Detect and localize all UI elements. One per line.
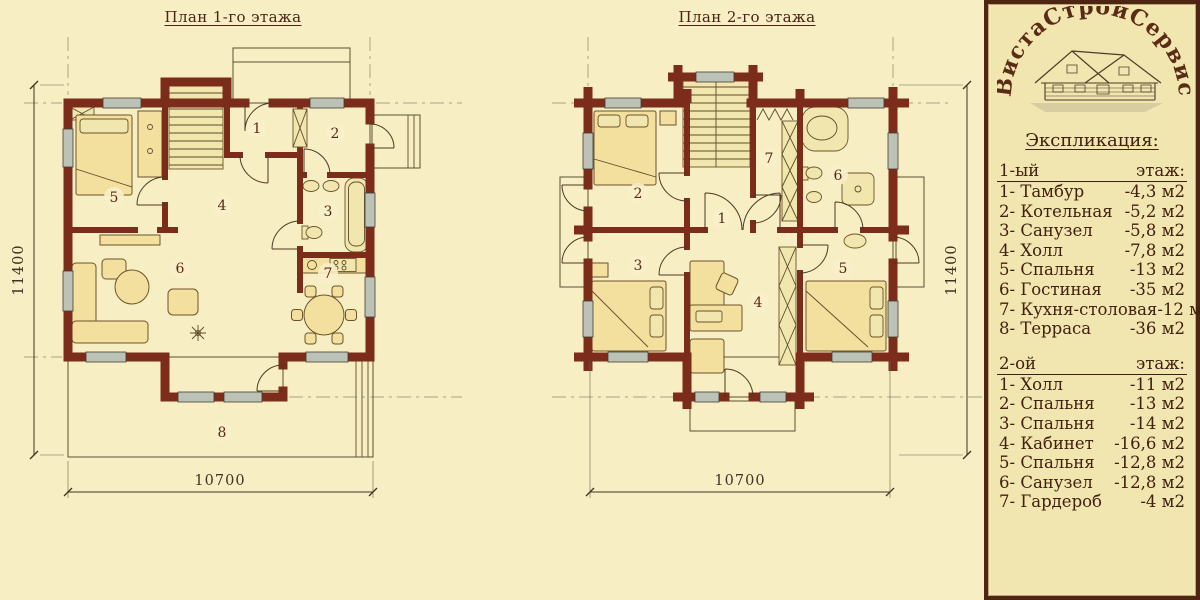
room-name: 7- Кухня-столовая: [999, 300, 1157, 320]
plan2-title: План 2-го этажа: [632, 8, 862, 26]
legend-row: 5- Спальня-12,8 м2: [997, 453, 1187, 473]
floor-plan-1-drawing: 1 2 3 4 5 6 7 8 10700 11400: [10, 25, 470, 510]
room-area: -14 м2: [1130, 414, 1185, 434]
room-area: -36 м2: [1130, 319, 1185, 339]
logo-arc-text: ВистаСтройСервис: [997, 6, 1193, 98]
plan1-vent-shaft: [293, 109, 307, 147]
room-name: 2- Котельная: [999, 202, 1113, 222]
plan2-dim-side: 11400: [944, 244, 960, 295]
plan2-room-label-7: 7: [765, 151, 774, 167]
plan1-entry-porch: [233, 48, 350, 103]
room-area: -7,8 м2: [1125, 241, 1185, 261]
plan1-dim-bottom: 10700: [194, 473, 245, 489]
legend-row: 5- Спальня-13 м2: [997, 260, 1187, 280]
plant-icon: [190, 325, 206, 341]
room-name: 5- Спальня: [999, 453, 1095, 473]
room-area: -35 м2: [1130, 280, 1185, 300]
svg-text:ВистаСтройСервис: ВистаСтройСервис: [997, 6, 1193, 98]
floor-plan-2-drawing: 1 2 3 4 5 6 7 10700 11400: [550, 25, 990, 510]
legend-row: 2- Котельная-5,2 м2: [997, 202, 1187, 222]
room-area: -5,2 м2: [1125, 202, 1185, 222]
room-area: -12 м2: [1157, 300, 1200, 320]
plan2-dim-bottom: 10700: [714, 473, 765, 489]
room-area: -13 м2: [1130, 260, 1185, 280]
legend-floor1-section: 1-ый этаж: 1- Тамбур-4,3 м2 2- Котельная…: [997, 161, 1187, 339]
legend-floor2-header: 2-ой этаж:: [997, 354, 1187, 375]
logo-house-sketch: [1030, 51, 1163, 112]
room-area: -11 м2: [1130, 375, 1185, 395]
floor1-label: 1-ый: [999, 161, 1039, 180]
plan2-bedroom2-furniture: [594, 111, 676, 185]
legend-panel: ВистаСтройСервис Экспликация: 1-ый этаж:…: [984, 0, 1200, 600]
legend-row: 1- Тамбур-4,3 м2: [997, 182, 1187, 202]
room-name: 4- Холл: [999, 241, 1063, 261]
legend-row: 4- Кабинет-16,6 м2: [997, 434, 1187, 454]
room-area: -4 м2: [1140, 492, 1185, 512]
plan1-terrace: [68, 357, 373, 457]
room-name: 8- Терраса: [999, 319, 1091, 339]
company-logo: ВистаСтройСервис: [997, 6, 1193, 118]
plan1-dim-side: 11400: [11, 244, 27, 295]
legend-row: 6- Санузел-12,8 м2: [997, 473, 1187, 493]
plan1-room-label-2: 2: [331, 126, 340, 142]
room-name: 6- Гостиная: [999, 280, 1102, 300]
room-name: 7- Гардероб: [999, 492, 1102, 512]
plan2-bedroom5-furniture: [806, 234, 886, 351]
room-name: 6- Санузел: [999, 473, 1093, 493]
legend-row: 3- Спальня-14 м2: [997, 414, 1187, 434]
plan1-room-label-4: 4: [218, 198, 227, 214]
plan2-room-label-1: 1: [718, 211, 727, 227]
plan2-room-label-3: 3: [634, 258, 643, 274]
legend-floor2-section: 2-ой этаж: 1- Холл-11 м2 2- Спальня-13 м…: [997, 354, 1187, 512]
plan1-room-label-7: 7: [324, 266, 333, 282]
room-area: -5,8 м2: [1125, 221, 1185, 241]
room-name: 3- Санузел: [999, 221, 1093, 241]
room-area: -12,8 м2: [1114, 453, 1185, 473]
room-name: 2- Спальня: [999, 394, 1095, 414]
plan1-room-label-1: 1: [253, 121, 262, 137]
plan2-bathroom-fixtures: [802, 107, 874, 205]
legend-heading: Экспликация:: [997, 130, 1187, 151]
plan2-room-label-4: 4: [754, 295, 763, 311]
plan1-bedroom-furniture: [70, 107, 162, 195]
plan2-bedroom3-furniture: [592, 263, 666, 351]
plan-sheet: { "colors": {"background":"#f8eec4","pan…: [0, 0, 1200, 600]
plan2-stairs: [683, 81, 750, 167]
room-name: 5- Спальня: [999, 260, 1095, 280]
plan2-room-label-6: 6: [834, 168, 843, 184]
plan1-living-furniture: [72, 235, 206, 343]
plan2-room-label-2: 2: [634, 186, 643, 202]
room-area: -4,3 м2: [1125, 182, 1185, 202]
room-name: 1- Холл: [999, 375, 1063, 395]
legend-row: 2- Спальня-13 м2: [997, 394, 1187, 414]
plan1-title: План 1-го этажа: [118, 8, 348, 26]
plan1-room-label-8: 8: [218, 425, 227, 441]
plan1-side-porch: [372, 115, 420, 168]
plan2-bookshelf: [779, 247, 796, 365]
legend-row: 7- Кухня-столовая-12 м2: [997, 300, 1187, 320]
legend-row: 7- Гардероб-4 м2: [997, 492, 1187, 512]
plan1-room-label-3: 3: [324, 204, 333, 220]
floor1-suffix: этаж:: [1136, 161, 1185, 180]
room-name: 4- Кабинет: [999, 434, 1094, 454]
floor2-label: 2-ой: [999, 354, 1036, 373]
plan1-room-label-6: 6: [176, 261, 185, 277]
room-area: -12,8 м2: [1114, 473, 1185, 493]
plan2-office-furniture: [690, 261, 742, 373]
plan1-stairs: [169, 85, 223, 169]
room-name: 3- Спальня: [999, 414, 1095, 434]
plan2-room-label-5: 5: [839, 261, 848, 277]
legend-row: 4- Холл-7,8 м2: [997, 241, 1187, 261]
legend-floor1-header: 1-ый этаж:: [997, 161, 1187, 182]
legend-row: 8- Терраса-36 м2: [997, 319, 1187, 339]
plan1-room-label-5: 5: [110, 190, 119, 206]
legend-row: 1- Холл-11 м2: [997, 375, 1187, 395]
legend-row: 6- Гостиная-35 м2: [997, 280, 1187, 300]
room-name: 1- Тамбур: [999, 182, 1084, 202]
legend-row: 3- Санузел-5,8 м2: [997, 221, 1187, 241]
plan2-bottom-porch: [690, 401, 795, 431]
room-area: -16,6 м2: [1114, 434, 1185, 454]
room-area: -13 м2: [1130, 394, 1185, 414]
floor2-suffix: этаж:: [1136, 354, 1185, 373]
